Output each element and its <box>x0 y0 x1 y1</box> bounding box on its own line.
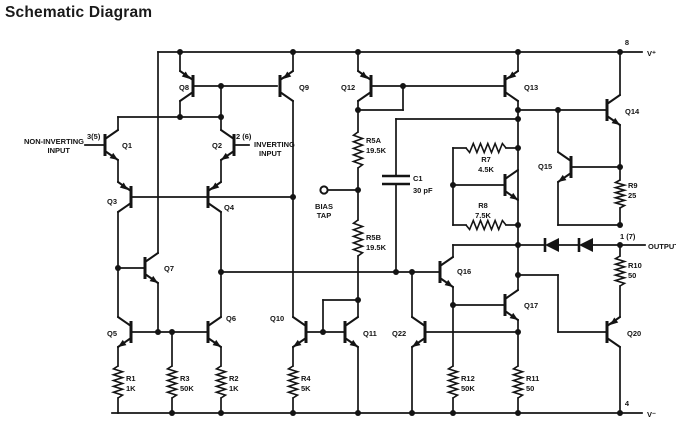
transistor-collector <box>412 317 425 326</box>
label-r7-value: 4.5K <box>478 165 494 174</box>
junction-dot <box>617 410 623 416</box>
resistor-r4 <box>289 347 298 413</box>
junction-dot <box>169 410 175 416</box>
resistor-r3 <box>168 332 177 413</box>
junction-dot <box>617 49 623 55</box>
wires <box>85 52 645 413</box>
junction-dot <box>290 49 296 55</box>
junction-dot <box>400 83 406 89</box>
junction-dot <box>218 269 224 275</box>
resistor-zigzag <box>514 366 523 398</box>
label-q17: Q17 <box>524 301 538 310</box>
label-q7: Q7 <box>164 264 174 273</box>
labels: Q1Q2Q3Q4Q5Q6Q7Q8Q9Q10Q11Q12Q13Q14Q15Q16Q… <box>24 38 676 419</box>
junction-dot <box>515 222 521 228</box>
label-q5: Q5 <box>107 329 117 338</box>
label-r12-name: R12 <box>461 374 475 383</box>
label-inv_line1: INVERTING <box>254 140 295 149</box>
junction-dot <box>515 410 521 416</box>
transistor-q2 <box>221 130 234 160</box>
label-r2-name: R2 <box>229 374 239 383</box>
transistor-q22 <box>412 317 425 347</box>
resistor-zigzag <box>466 144 506 153</box>
label-q3: Q3 <box>107 197 117 206</box>
diode-triangle <box>545 238 559 252</box>
junction-dot <box>515 329 521 335</box>
label-r8-value: 7.5K <box>475 211 491 220</box>
label-noninv_num: 3(5) <box>87 132 101 141</box>
resistor-r10 <box>616 245 625 317</box>
label-r4-value: 5K <box>301 384 311 393</box>
junction-dot <box>355 49 361 55</box>
junction-dot <box>355 187 361 193</box>
label-q15: Q15 <box>538 162 552 171</box>
label-r10-value: 50 <box>628 271 636 280</box>
label-q13: Q13 <box>524 83 538 92</box>
transistor-collector <box>607 95 620 104</box>
resistor-r7 <box>453 144 518 153</box>
diode <box>579 238 593 252</box>
label-r8-name: R8 <box>478 201 488 210</box>
transistor-q15 <box>558 152 571 182</box>
capacitor-c1 <box>382 176 410 184</box>
junction-dot <box>515 272 521 278</box>
label-output_num: 1 (7) <box>620 232 636 241</box>
label-q6: Q6 <box>226 314 236 323</box>
label-noninv_line2: INPUT <box>48 146 71 155</box>
transistor-q16 <box>440 257 453 287</box>
bias-tap-terminal <box>320 186 327 193</box>
resistor-zigzag <box>114 366 123 398</box>
transistor-q20 <box>607 317 620 347</box>
label-q16: Q16 <box>457 267 471 276</box>
junction-dot <box>290 194 296 200</box>
junction-dot <box>617 222 623 228</box>
transistor-emitter <box>208 203 221 212</box>
label-inv_num: 2 (6) <box>236 132 252 141</box>
label-bias_line2: TAP <box>317 211 331 220</box>
junction-dot <box>450 182 456 188</box>
junction-dot <box>515 145 521 151</box>
transistor-emitter <box>358 92 371 101</box>
label-r11-name: R11 <box>526 374 539 383</box>
label-r3-name: R3 <box>180 374 190 383</box>
transistor-collector <box>145 253 158 262</box>
transistor-collector <box>505 170 518 179</box>
resistor-r1 <box>114 347 123 413</box>
label-q8: Q8 <box>179 83 189 92</box>
transistor-collector <box>558 152 571 161</box>
transistor-emitter <box>180 92 193 101</box>
junction-dot <box>409 410 415 416</box>
resistor-zigzag <box>466 221 506 230</box>
transistor-collector <box>345 317 358 326</box>
transistor-emitter <box>607 338 620 347</box>
transistor-collector <box>293 317 306 326</box>
resistor-zigzag <box>217 366 226 398</box>
junction-dot <box>320 329 326 335</box>
transistor-q9 <box>280 71 293 101</box>
transistor-q7 <box>145 253 158 283</box>
junction-dot <box>450 410 456 416</box>
resistor-zigzag <box>449 366 458 398</box>
label-noninv_line1: NON-INVERTING <box>24 137 84 146</box>
label-r7-name: R7 <box>481 155 491 164</box>
label-r10-name: R10 <box>628 261 642 270</box>
junction-dot <box>169 329 175 335</box>
label-r3-value: 50K <box>180 384 194 393</box>
transistor-q11 <box>345 317 358 347</box>
label-bias_line1: BIAS <box>315 202 333 211</box>
label-vplus_label: V⁺ <box>647 49 656 58</box>
transistor-collector <box>208 317 221 326</box>
label-r5b-value: 19.5K <box>366 243 387 252</box>
transistor-emitter <box>505 92 518 101</box>
junction-dot <box>218 410 224 416</box>
junction-dot <box>617 242 623 248</box>
resistor-zigzag <box>289 366 298 398</box>
transistor-q10 <box>293 317 306 347</box>
label-output_label: OUTPUT <box>648 242 676 251</box>
transistor-q12 <box>358 71 371 101</box>
label-vplus_num: 8 <box>625 38 629 47</box>
resistor-r5a <box>354 110 363 190</box>
resistor-zigzag <box>616 180 625 208</box>
transistor-collector <box>440 257 453 266</box>
label-r1-name: R1 <box>126 374 136 383</box>
transistor-collector <box>105 130 118 139</box>
junction-dot <box>515 242 521 248</box>
junction-dot <box>515 107 521 113</box>
label-r4-name: R4 <box>301 374 311 383</box>
transistor-q14 <box>607 95 620 125</box>
resistor-r9 <box>616 167 625 225</box>
label-q11: Q11 <box>363 329 377 338</box>
transistor-q6 <box>208 317 221 347</box>
junction-dot <box>115 265 121 271</box>
label-q4: Q4 <box>224 203 235 212</box>
junction-dot <box>409 269 415 275</box>
label-q2: Q2 <box>212 141 222 150</box>
junction-dot <box>555 107 561 113</box>
resistor-r2 <box>217 347 226 413</box>
transistor-emitter <box>280 92 293 101</box>
resistor-zigzag <box>354 132 363 168</box>
junction-dot <box>355 107 361 113</box>
junction-dot <box>218 114 224 120</box>
label-r5b-name: R5B <box>366 233 382 242</box>
label-r1-value: 1K <box>126 384 136 393</box>
junction-dot <box>155 329 161 335</box>
label-q9: Q9 <box>299 83 309 92</box>
transistor-qx <box>505 170 518 200</box>
transistor-q13 <box>505 71 518 101</box>
label-r2-value: 1K <box>229 384 239 393</box>
label-q1: Q1 <box>122 141 132 150</box>
resistor-r12 <box>449 305 458 413</box>
label-q20: Q20 <box>627 329 641 338</box>
transistor-q5 <box>118 317 131 347</box>
junction-dot <box>515 116 521 122</box>
label-c1-name: C1 <box>413 174 423 183</box>
junction-dot <box>617 164 623 170</box>
bias-tap <box>320 186 327 193</box>
transistor-q3 <box>118 182 131 212</box>
label-inv_line2: INPUT <box>259 149 282 158</box>
junction-dot <box>177 114 183 120</box>
junction-dot <box>177 49 183 55</box>
junction-dot <box>290 410 296 416</box>
label-r5a-name: R5A <box>366 136 382 145</box>
junction-dot <box>355 410 361 416</box>
label-q10: Q10 <box>270 314 284 323</box>
junction-dot <box>218 83 224 89</box>
resistor-r11 <box>514 332 523 413</box>
label-q14: Q14 <box>625 107 640 116</box>
label-c1-value: 30 pF <box>413 186 433 195</box>
label-r12-value: 50K <box>461 384 475 393</box>
transistor-q1 <box>105 130 118 160</box>
junction-dot <box>450 302 456 308</box>
resistor-zigzag <box>354 220 363 256</box>
transistor-q17 <box>505 290 518 320</box>
transistor-collector <box>118 317 131 326</box>
resistor-r8 <box>453 221 518 230</box>
label-q22: Q22 <box>392 329 406 338</box>
label-q12: Q12 <box>341 83 355 92</box>
diode-triangle <box>579 238 593 252</box>
junction-dot <box>355 297 361 303</box>
resistor-zigzag <box>168 366 177 398</box>
diode <box>545 238 559 252</box>
junction-dot <box>515 49 521 55</box>
label-r5a-value: 19.5K <box>366 146 387 155</box>
schematic-canvas: Q1Q2Q3Q4Q5Q6Q7Q8Q9Q10Q11Q12Q13Q14Q15Q16Q… <box>0 0 676 422</box>
label-r9-name: R9 <box>628 181 638 190</box>
transistor-collector <box>505 290 518 299</box>
junction-dot <box>393 269 399 275</box>
label-r9-value: 25 <box>628 191 636 200</box>
label-vminus_label: V⁻ <box>647 410 656 419</box>
resistor-r5b <box>354 190 363 300</box>
label-r11-value: 50 <box>526 384 534 393</box>
label-vminus_num: 4 <box>625 399 630 408</box>
transistor-collector <box>221 130 234 139</box>
resistor-zigzag <box>616 256 625 286</box>
transistor-emitter <box>118 203 131 212</box>
